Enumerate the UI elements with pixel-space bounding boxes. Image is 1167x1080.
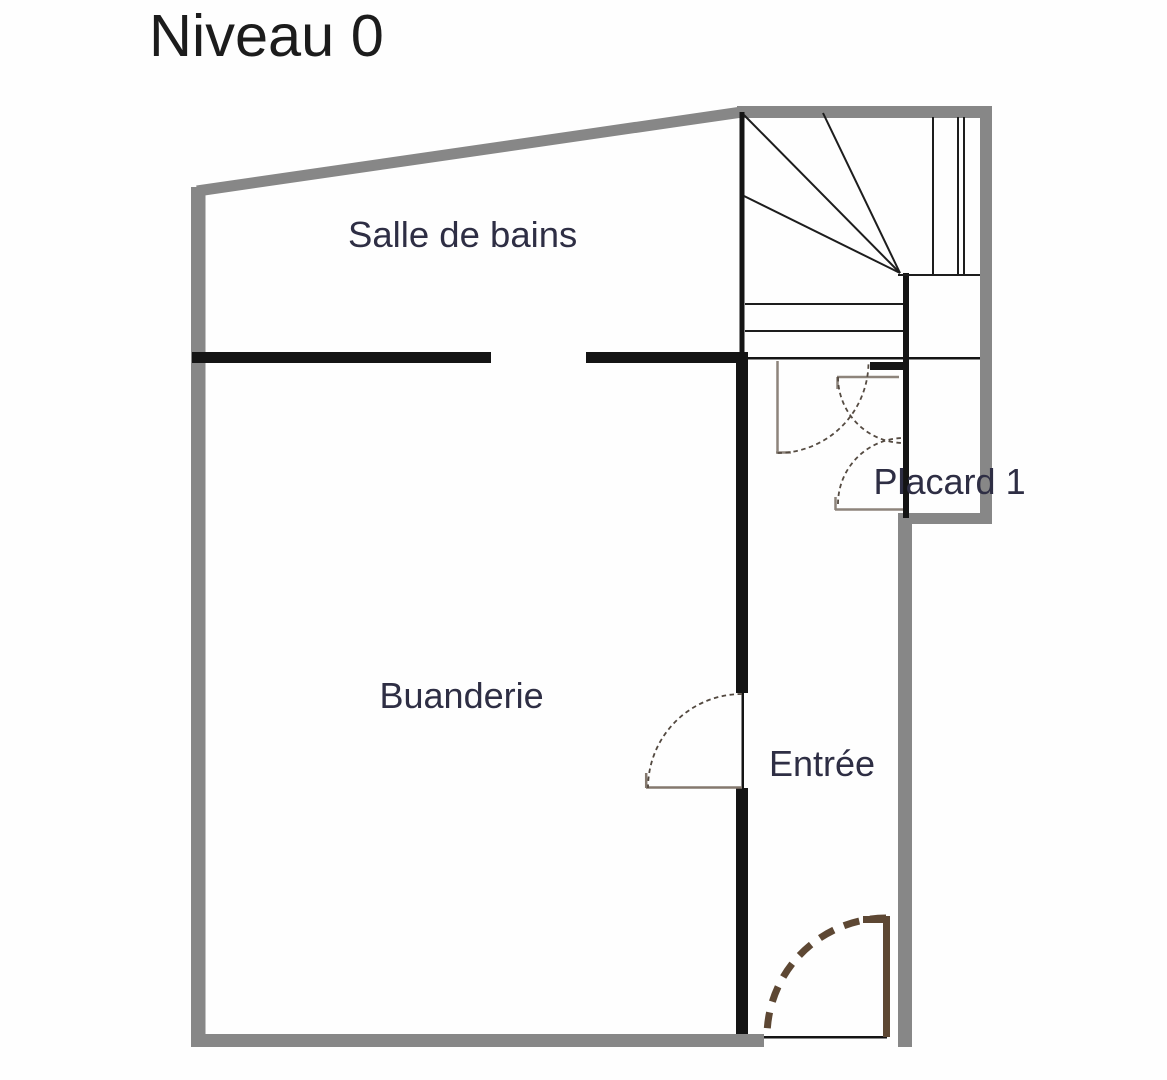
svg-text:Niveau 0: Niveau 0 xyxy=(149,2,384,69)
svg-text:Placard 1: Placard 1 xyxy=(874,461,1026,502)
svg-text:Entrée: Entrée xyxy=(769,743,875,784)
svg-text:Buanderie: Buanderie xyxy=(380,675,544,716)
svg-text:Salle de bains: Salle de bains xyxy=(348,214,577,255)
